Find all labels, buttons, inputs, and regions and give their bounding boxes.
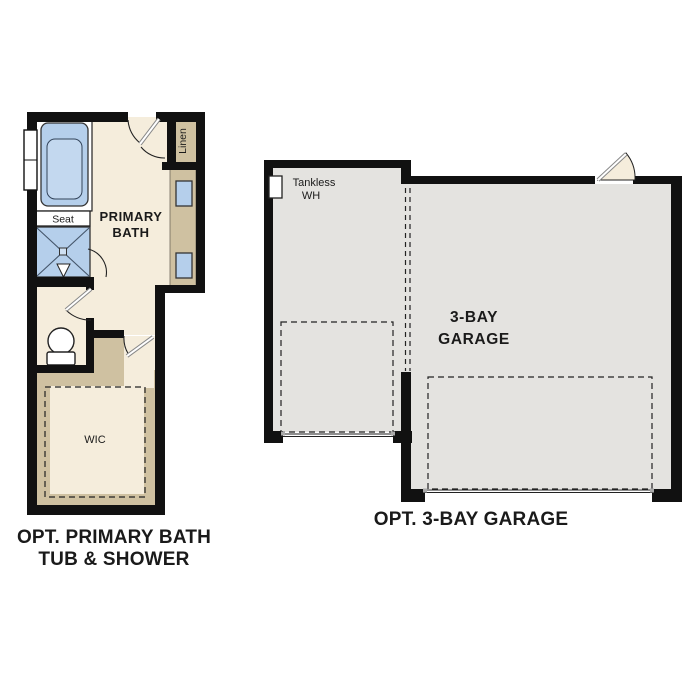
tankless-wh-label-line2: WH: [302, 190, 320, 202]
toilet: [47, 328, 75, 365]
primary-bath-label-line2: BATH: [112, 225, 149, 240]
window: [24, 130, 37, 190]
primary-bath-label-line1: PRIMARY: [100, 209, 163, 224]
vanity-sink-2: [176, 253, 192, 278]
tankless-wh-label-line1: Tankless: [293, 177, 336, 189]
garage-label-line2: GARAGE: [438, 331, 510, 348]
single-bay-garage-door: [281, 432, 395, 437]
bathtub: [36, 117, 92, 211]
garage-plan: Tankless WH 3-BAY GARAGE OPT. 3-BAY GARA…: [264, 153, 682, 530]
bath-caption-line1: OPT. PRIMARY BATH: [17, 527, 211, 548]
garage-floor: [273, 168, 671, 489]
wic-label: WIC: [84, 434, 105, 446]
shower: [36, 227, 90, 277]
garage-entry-door: [598, 153, 635, 180]
linen-label: Linen: [177, 128, 189, 154]
tankless-water-heater: [269, 176, 282, 198]
floorplan-image: PRIMARY BATH Seat Linen WIC OPT. PRIMARY…: [0, 0, 687, 687]
garage-label-line1: 3-BAY: [450, 309, 498, 326]
garage-caption: OPT. 3-BAY GARAGE: [374, 509, 569, 530]
seat-label: Seat: [52, 214, 74, 226]
floorplan-canvas: PRIMARY BATH Seat Linen WIC OPT. PRIMARY…: [0, 0, 687, 687]
vanity-sink-1: [176, 181, 192, 206]
bath-caption-line2: TUB & SHOWER: [38, 549, 189, 570]
vanity-counter: [170, 168, 196, 287]
primary-bath-plan: PRIMARY BATH Seat Linen WIC OPT. PRIMARY…: [17, 112, 211, 570]
shower-drain: [60, 248, 67, 255]
